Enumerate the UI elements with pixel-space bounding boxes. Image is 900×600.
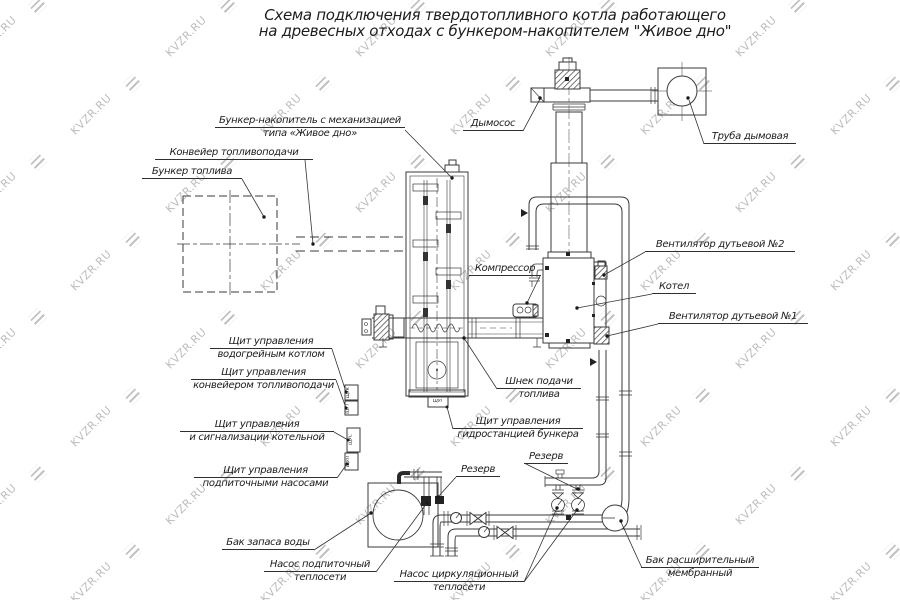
label-panel-makeup: Щит управления подпиточными насосами [194,465,337,489]
title-line-2: на древесных отходах с бункером-накопите… [90,24,900,40]
chimney [652,62,712,121]
schematic-drawing [0,0,900,600]
storage-bunker-tower [406,160,468,407]
drawing-title: Схема подключения твердотопливного котла… [90,8,900,39]
fuel-bunker [177,190,300,298]
label-panel-boiler: Щит управления водогрейным котлом [210,336,332,360]
compressor-unit [513,304,538,317]
label-reserve-1: Резерв [456,464,500,477]
draft-fan-2 [595,266,607,279]
panel-code-boiler: ЩУК [346,385,357,400]
label-panel-signal: Щит управления и сигнализации котельной [180,419,334,443]
label-water-tank: Бак запаса воды [222,537,314,550]
label-feed-screw: Шнек подачи топлива [497,376,581,400]
label-circulation-pump: Насос циркуляционный теплосети [394,569,524,593]
flue-and-exhauster [531,57,658,252]
label-draft-fan-2: Вентилятор дутьевой №2 [645,239,795,252]
label-compressor: Компрессор [469,263,541,276]
label-reserve-2: Резерв [524,451,568,464]
label-makeup-pump: Насос подпиточный теплосети [264,559,376,583]
label-fuel-conveyor: Конвейер топливоподачи [155,147,313,160]
label-boiler: Котел [652,281,696,294]
label-panel-conveyor: Щит управления конвейером топливоподачи [191,367,336,391]
label-fuel-bunker: Бункер топлива [142,166,242,179]
label-panel-hydro: Щит управления гидростанцией бункера [453,416,583,440]
smoke-exhauster-body [544,88,590,102]
label-draft-fan-1: Вентилятор дутьевой №1 [658,311,808,324]
panel-code-hydro: ЩУГ [428,399,448,406]
feed-screw-conveyor [362,306,543,347]
boiler [529,252,609,348]
expansion-tank [602,505,628,531]
panel-code-conveyor: ЩУТ [346,402,357,416]
panel-code-makeup: ЩУП [346,453,357,470]
label-storage-bunker: Бункер-накопитель с механизацией типа «Ж… [215,115,405,139]
leader-dots [262,96,689,522]
panel-code-signal: ЩУС [349,428,360,452]
drawing-sheet: KVZR.RUKVZR.RUKVZR.RUKVZR.RUKVZR.RUKVZR.… [0,0,900,600]
label-smoke-exhauster: Дымосос [463,118,523,131]
label-chimney: Труба дымовая [704,131,796,144]
label-expansion-tank: Бак расширительный мембранный [641,555,759,579]
